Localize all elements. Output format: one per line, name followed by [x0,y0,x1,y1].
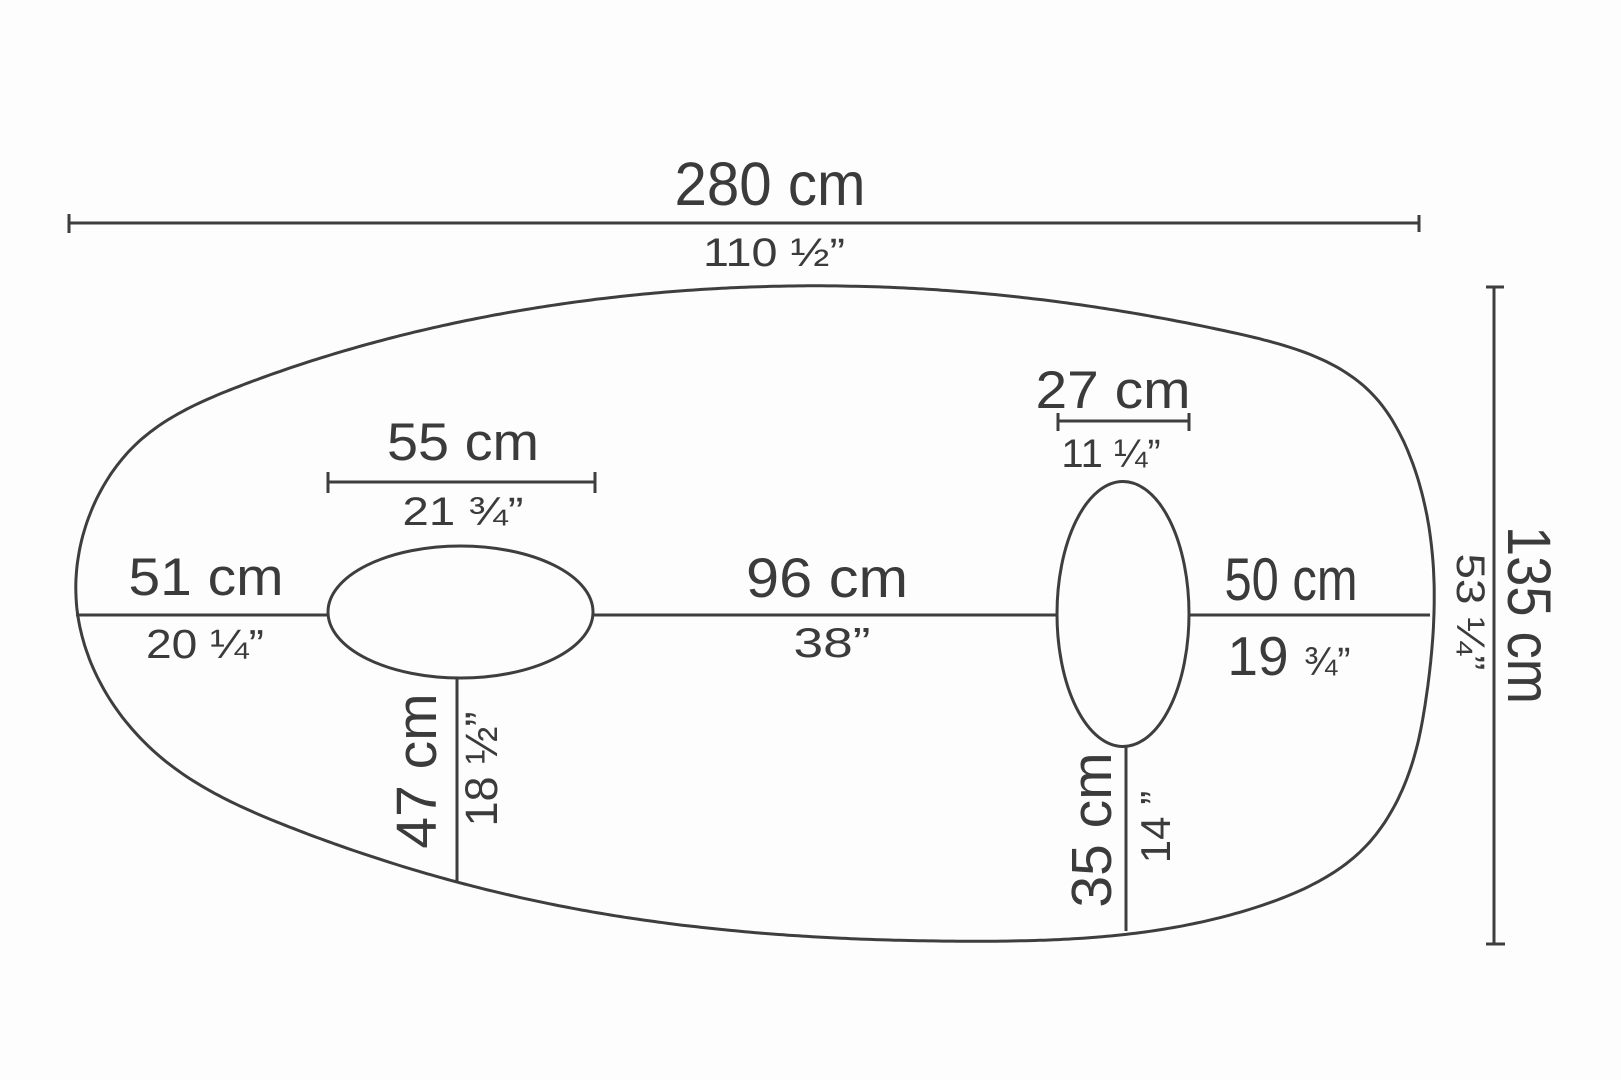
svg-text:96 cm: 96 cm [746,546,908,609]
svg-text:50 cm: 50 cm [1225,546,1358,613]
svg-text:19 ¾”: 19 ¾” [1227,625,1350,687]
svg-text:35 cm: 35 cm [1060,752,1124,907]
svg-text:110 ½”: 110 ½” [703,231,845,275]
svg-text:11 ¼”: 11 ¼” [1061,432,1160,476]
svg-text:53 ¼”: 53 ¼” [1448,554,1492,671]
svg-text:51 cm: 51 cm [129,548,284,607]
svg-text:14 ”: 14 ” [1132,791,1179,863]
svg-text:27 cm: 27 cm [1036,361,1191,420]
svg-text:280 cm: 280 cm [675,150,866,218]
svg-text:21 ¾”: 21 ¾” [403,490,524,534]
svg-text:55 cm: 55 cm [387,413,539,472]
svg-text:47 cm: 47 cm [385,693,449,848]
svg-text:20 ¼”: 20 ¼” [146,621,264,667]
svg-text:18 ½”: 18 ½” [456,711,507,826]
svg-text:135 cm: 135 cm [1495,526,1563,704]
svg-text:38”: 38” [794,619,871,666]
